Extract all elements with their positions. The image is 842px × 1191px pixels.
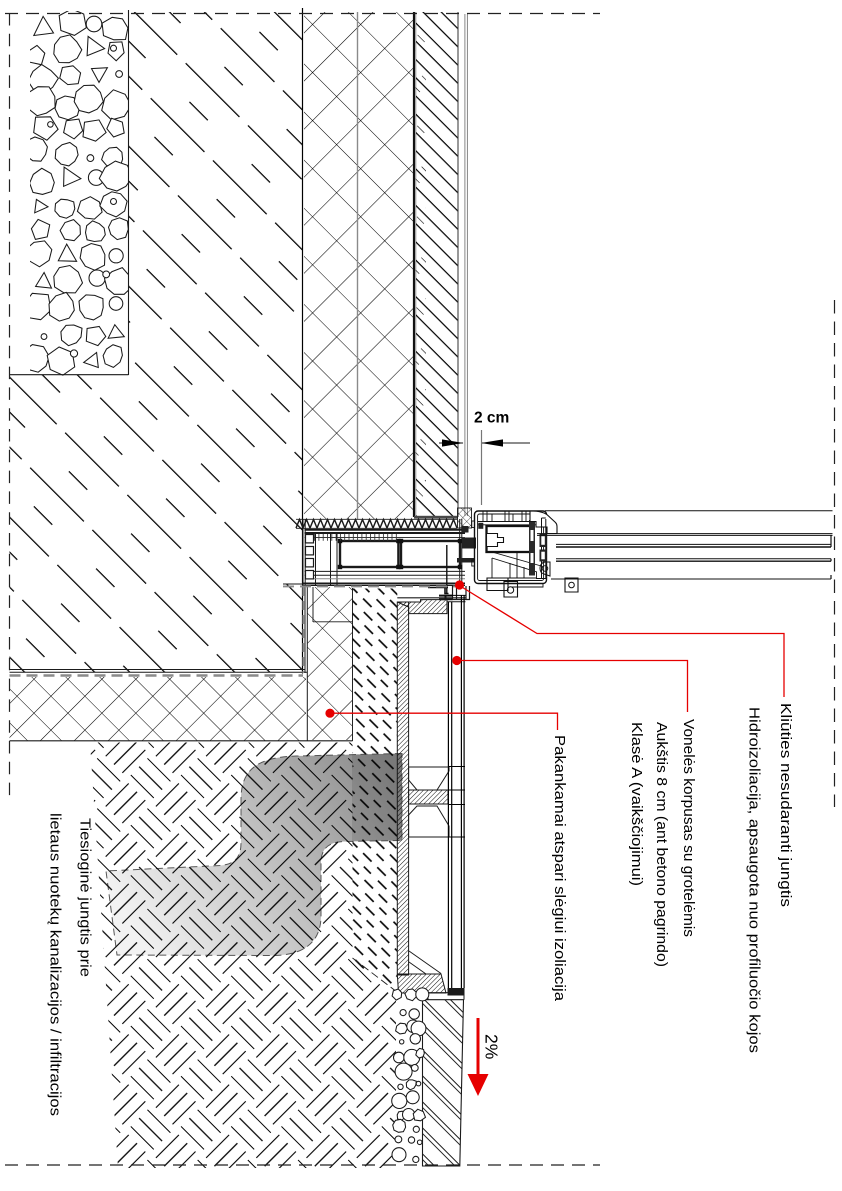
svg-text:2%: 2% bbox=[482, 1034, 502, 1059]
svg-text:Hidroizoliacija, apsaugota nuo: Hidroizoliacija, apsaugota nuo profiluoč… bbox=[746, 707, 763, 1053]
svg-text:lietaus nuotekų kanalizacijos: lietaus nuotekų kanalizacijos / infiltra… bbox=[47, 813, 64, 1116]
svg-text:Aukštis 8 cm (ant betono pagri: Aukštis 8 cm (ant betono pagrindo) bbox=[653, 722, 670, 967]
svg-text:Klasė A (vaikščiojimui): Klasė A (vaikščiojimui) bbox=[628, 722, 645, 886]
svg-text:Kliūties nesudaranti jungtis: Kliūties nesudaranti jungtis bbox=[777, 703, 794, 907]
svg-text:Pakankamai atspari slėgiui izo: Pakankamai atspari slėgiui izoliacija bbox=[551, 735, 568, 1002]
svg-text:Vonelės korpusas su grotelėmis: Vonelės korpusas su grotelėmis bbox=[680, 719, 697, 937]
svg-text:2 cm: 2 cm bbox=[474, 410, 509, 427]
svg-text:Tiesioginė jungtis prie: Tiesioginė jungtis prie bbox=[77, 818, 94, 977]
